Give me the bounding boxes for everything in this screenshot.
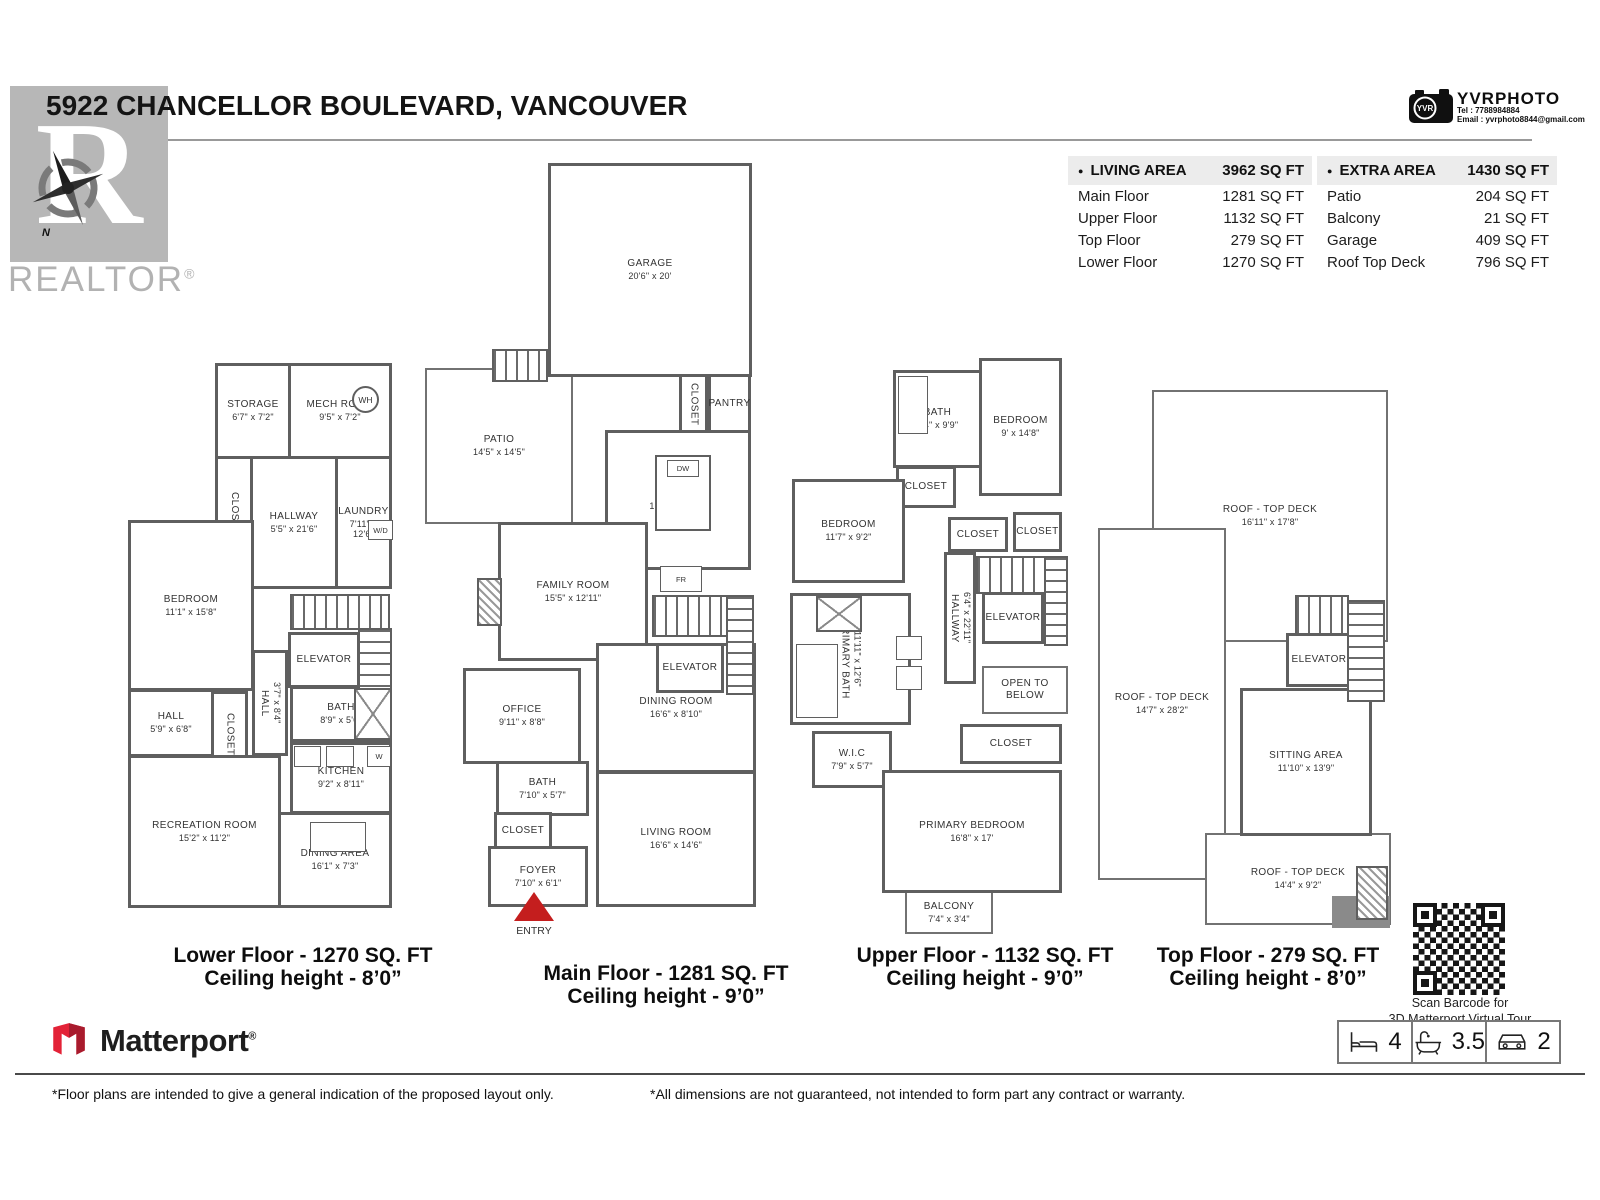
- bathtub-icon: [898, 376, 928, 434]
- room-garage: GARAGE20'6" x 20': [548, 163, 752, 377]
- room-balcony: BALCONY7'4" x 3'4": [905, 891, 993, 934]
- bathtub-icon: [796, 644, 838, 718]
- bathrooms-cell: 3.5: [1413, 1022, 1487, 1062]
- fridge-box: FR: [660, 566, 702, 592]
- room-roof-top-deck: ROOF - TOP DECK14'7" x 28'2": [1098, 528, 1226, 880]
- shower-icon: [816, 596, 862, 632]
- stairs: [492, 349, 548, 382]
- room-living-room: LIVING ROOM16'6" x 14'6": [596, 771, 756, 907]
- vanity-sink-box: [896, 666, 922, 690]
- stairs: [976, 556, 1046, 594]
- photo-studio-email: Email : yvrphoto8844@gmail.com: [1457, 115, 1585, 124]
- room-bedroom: BEDROOM11'7" x 9'2": [792, 479, 905, 583]
- table-row: Roof Top Deck796 SQ FT: [1317, 251, 1557, 273]
- qr-finder-icon: [1413, 971, 1437, 995]
- living-area-total: 3962 SQ FT: [1222, 162, 1304, 179]
- washer-dryer-box: W/D: [368, 520, 393, 540]
- entry-label: ENTRY: [502, 925, 566, 937]
- extra-area-label: EXTRA AREA: [1339, 162, 1435, 179]
- stairs: [1347, 600, 1385, 702]
- room-hallway: HALLWAY5'5" x 21'6": [250, 456, 338, 589]
- room-storage: STORAGE6'7" x 7'2": [215, 363, 291, 459]
- bath-icon: [1413, 1029, 1444, 1056]
- room-mech-room: MECH ROOM9'5" x 7'2": [288, 363, 392, 459]
- dishwasher-box: DW: [667, 460, 699, 477]
- car-icon: [1495, 1029, 1529, 1055]
- table-row: Lower Floor1270 SQ FT: [1068, 251, 1312, 273]
- stairs: [290, 594, 390, 630]
- sink-box: [294, 746, 321, 767]
- room-closet: CLOSET: [494, 812, 552, 850]
- water-heater-icon: WH: [352, 386, 379, 413]
- room-closet: CLOSET: [896, 466, 956, 508]
- bedrooms-cell: 4: [1339, 1022, 1413, 1062]
- washer-box: W: [367, 746, 391, 767]
- room-bedroom: BEDROOM11'1" x 15'8": [128, 520, 254, 691]
- room-hall: HALL5'9" x 6'8": [128, 689, 214, 757]
- table-row: Balcony21 SQ FT: [1317, 207, 1557, 229]
- matterport-logo: Matterport®: [48, 1020, 256, 1062]
- qr-code: [1413, 903, 1505, 995]
- svg-text:N: N: [42, 227, 51, 239]
- room-office: OFFICE9'11" x 8'8": [463, 668, 581, 764]
- stairs: [358, 628, 392, 690]
- compass-icon: N: [24, 146, 112, 240]
- bedrooms-count: 4: [1388, 1028, 1401, 1056]
- realtor-wordmark: REALTOR®: [8, 260, 196, 300]
- room-elevator: ELEVATOR: [288, 632, 360, 688]
- room-sitting-area: SITTING AREA11'10" x 13'9": [1240, 688, 1372, 836]
- room-elevator: ELEVATOR: [656, 643, 724, 693]
- room-bath: BATH7'10" x 5'7": [496, 761, 589, 816]
- table-row: Garage409 SQ FT: [1317, 229, 1557, 251]
- room-closet: CLOSET: [1013, 512, 1062, 552]
- room-family-room: FAMILY ROOM15'5" x 12'11": [498, 522, 648, 661]
- chimney-shaft-icon: [1356, 866, 1388, 920]
- vanity-sink-box: [896, 636, 922, 660]
- room-hallway: HALLWAY6'4" x 22'11": [944, 552, 976, 684]
- stairs: [1044, 556, 1068, 646]
- bed-icon: [1348, 1029, 1380, 1055]
- room-open-to-below: OPEN TO BELOW: [982, 666, 1068, 714]
- entry-arrow-icon: [514, 892, 554, 921]
- fireplace-icon: [477, 578, 502, 626]
- room-recreation-room: RECREATION ROOM15'2" x 11'2": [128, 755, 281, 908]
- bullet-icon: ●: [1327, 166, 1332, 176]
- disclaimer-left: *Floor plans are intended to give a gene…: [52, 1086, 554, 1102]
- qr-finder-icon: [1413, 903, 1437, 927]
- room-elevator: ELEVATOR: [1286, 633, 1352, 687]
- camera-icon: YVR: [1408, 85, 1454, 125]
- living-area-table: ● LIVING AREA 3962 SQ FT Main Floor1281 …: [1068, 156, 1312, 273]
- room-elevator: ELEVATOR: [982, 592, 1044, 644]
- shower-icon: [354, 688, 392, 740]
- room-closet: CLOSET: [960, 724, 1062, 764]
- table-row: Main Floor1281 SQ FT: [1068, 185, 1312, 207]
- extra-area-header: ● EXTRA AREA 1430 SQ FT: [1317, 156, 1557, 185]
- room-closet: CLOSET: [679, 374, 708, 434]
- island-counter: [310, 822, 366, 852]
- top-floor-caption: Top Floor - 279 SQ. FTCeiling height - 8…: [1078, 944, 1458, 990]
- bullet-icon: ●: [1078, 166, 1083, 176]
- lower-floor-caption: Lower Floor - 1270 SQ. FTCeiling height …: [113, 944, 493, 990]
- stairs: [652, 595, 730, 637]
- room-closet: CLOSET: [948, 517, 1008, 552]
- disclaimer-right: *All dimensions are not guaranteed, not …: [650, 1086, 1185, 1102]
- kitchen-island: DW: [655, 455, 711, 531]
- living-area-header: ● LIVING AREA 3962 SQ FT: [1068, 156, 1312, 185]
- table-row: Upper Floor1132 SQ FT: [1068, 207, 1312, 229]
- photo-studio-tel: Tel : 7788984884: [1457, 106, 1520, 115]
- extra-area-table: ● EXTRA AREA 1430 SQ FT Patio204 SQ FT B…: [1317, 156, 1557, 273]
- page-title: 5922 CHANCELLOR BOULEVARD, VANCOUVER: [46, 90, 687, 122]
- stats-table: 4 3.5 2: [1337, 1020, 1561, 1064]
- table-row: Top Floor279 SQ FT: [1068, 229, 1312, 251]
- svg-text:YVR: YVR: [1417, 104, 1434, 113]
- table-row: Patio204 SQ FT: [1317, 185, 1557, 207]
- matterport-wordmark: Matterport®: [100, 1023, 256, 1059]
- footer-divider: [15, 1073, 1585, 1075]
- room-patio: PATIO14'5" x 14'5": [425, 368, 573, 524]
- parking-count: 2: [1537, 1028, 1550, 1056]
- parking-cell: 2: [1487, 1022, 1559, 1062]
- room-hall: HALL3'7" x 8'4": [252, 650, 288, 756]
- bathrooms-count: 3.5: [1452, 1028, 1485, 1056]
- room-pantry: PANTRY: [708, 374, 751, 434]
- room-bedroom: BEDROOM9' x 14'8": [979, 358, 1062, 496]
- living-area-label: LIVING AREA: [1090, 162, 1186, 179]
- stairs: [1295, 595, 1349, 635]
- stairs: [726, 595, 754, 695]
- qr-finder-icon: [1481, 903, 1505, 927]
- extra-area-total: 1430 SQ FT: [1467, 162, 1549, 179]
- room-primary-bedroom: PRIMARY BEDROOM16'8" x 17': [882, 770, 1062, 893]
- stove-box: [326, 746, 354, 767]
- matterport-icon: [48, 1020, 90, 1062]
- room-wic: W.I.C7'9" x 5'7": [812, 731, 892, 788]
